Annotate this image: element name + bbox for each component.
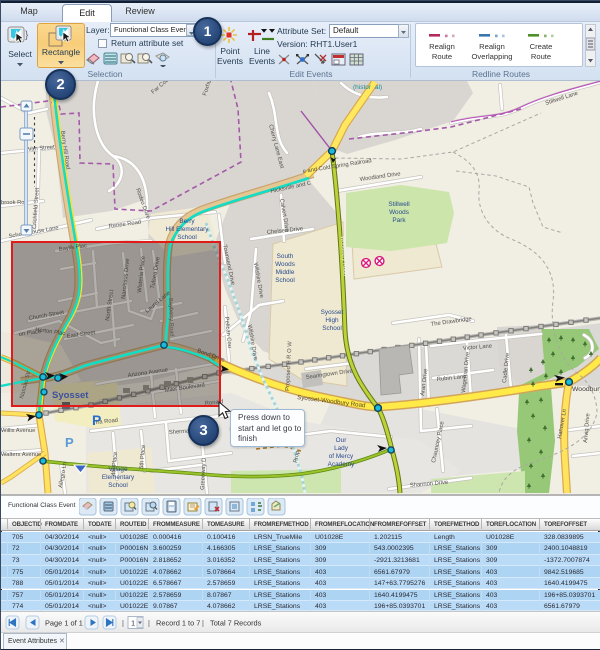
svg-text:Elementary: Elementary <box>102 474 135 481</box>
svg-text:High: High <box>325 317 339 324</box>
svg-text:Events: Events <box>249 56 275 66</box>
svg-text:Events: Events <box>217 56 243 66</box>
svg-text:|: | <box>202 619 204 628</box>
svg-text:School: School <box>275 277 295 284</box>
svg-text:of Mercy: of Mercy <box>329 453 354 460</box>
svg-text:Walters Avenue: Walters Avenue <box>1 452 41 458</box>
svg-text:Woods: Woods <box>389 209 409 216</box>
svg-text:Rectangle: Rectangle <box>42 47 81 57</box>
svg-text:Overlapping: Overlapping <box>472 52 513 61</box>
svg-text:Realign: Realign <box>429 42 455 51</box>
svg-text:Line: Line <box>254 46 270 56</box>
svg-text:Our: Our <box>336 437 348 444</box>
svg-text:Record 1 to 7: Record 1 to 7 <box>156 619 200 628</box>
svg-text:Lady: Lady <box>334 445 349 452</box>
svg-text:Point: Point <box>220 46 240 56</box>
svg-text:P: P <box>65 435 74 450</box>
svg-text:School: School <box>108 482 128 489</box>
svg-text:Village: Village <box>108 466 128 473</box>
svg-text:Route: Route <box>432 52 452 61</box>
svg-text:Willis Avenue: Willis Avenue <box>1 428 35 434</box>
svg-text:Woodbury: Woodbury <box>572 386 600 393</box>
svg-text:Syosset: Syosset <box>321 309 344 316</box>
svg-text:|: | <box>122 619 124 628</box>
svg-text:1: 1 <box>131 619 135 628</box>
svg-text:Middle: Middle <box>276 269 295 276</box>
svg-text:(histor: (histor <box>353 84 372 91</box>
svg-text:Total 7 Records: Total 7 Records <box>210 619 262 628</box>
svg-text:|: | <box>148 619 150 628</box>
svg-text:Select: Select <box>8 49 32 59</box>
svg-text:Stillwell: Stillwell <box>388 201 409 208</box>
svg-text:Create: Create <box>530 42 553 51</box>
svg-text:South: South <box>277 253 294 260</box>
svg-text:Woods: Woods <box>275 261 295 268</box>
svg-text:Realign: Realign <box>479 42 505 51</box>
svg-text:Berry: Berry <box>179 218 195 225</box>
svg-text:al): al) <box>375 84 382 91</box>
svg-text:School: School <box>177 234 197 241</box>
svg-text:Page 1 of 1: Page 1 of 1 <box>45 619 83 628</box>
svg-text:}: } <box>25 30 29 41</box>
svg-text:Park: Park <box>392 217 406 224</box>
svg-text:School: School <box>322 325 342 332</box>
svg-text:Academy: Academy <box>328 461 355 468</box>
svg-text:Route: Route <box>531 52 551 61</box>
svg-text:Syosset: Syosset <box>52 390 89 401</box>
svg-text:Hill Elementary: Hill Elementary <box>166 226 210 233</box>
